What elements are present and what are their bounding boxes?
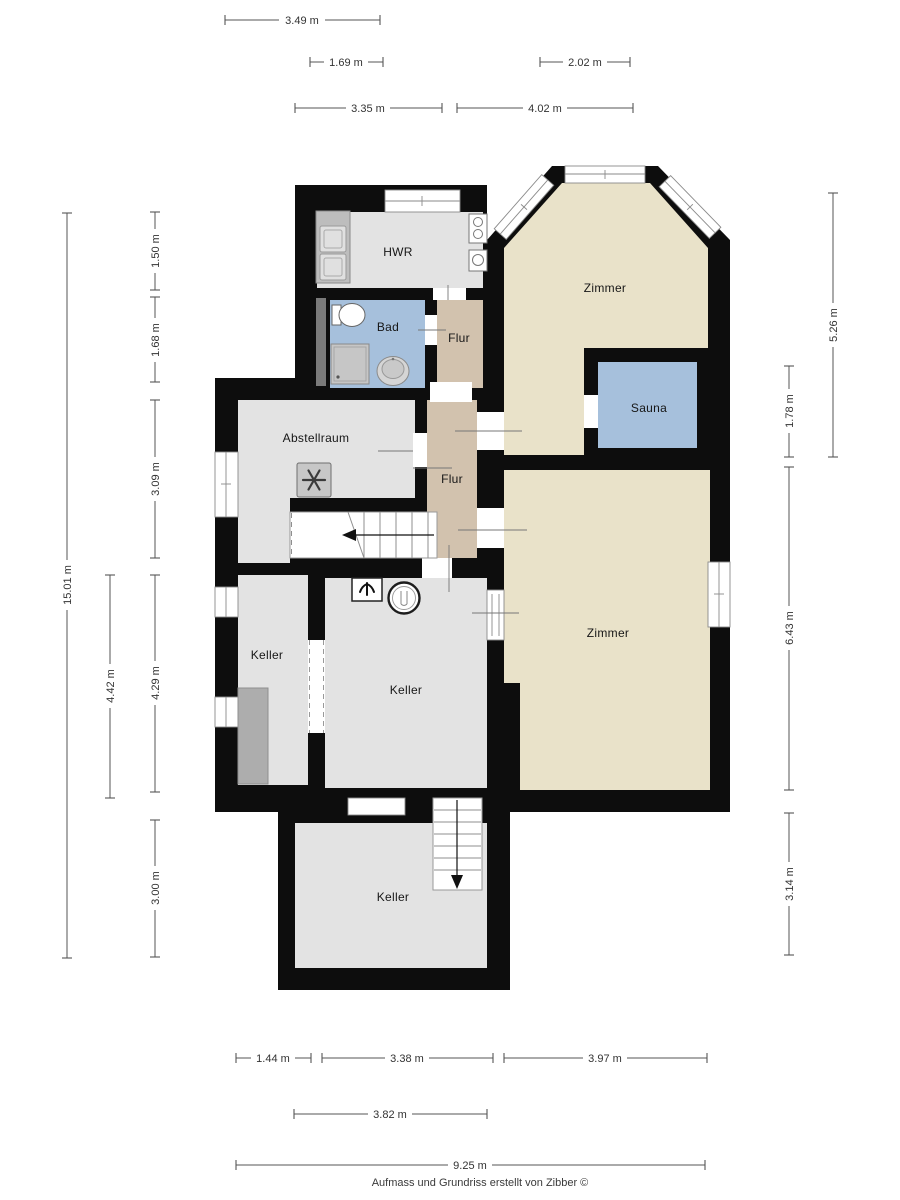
label-hwr: HWR xyxy=(383,245,413,259)
dimension: 6.43 m xyxy=(782,467,796,790)
svg-text:2.02 m: 2.02 m xyxy=(568,57,602,69)
svg-text:3.97 m: 3.97 m xyxy=(588,1053,622,1065)
washbasin-icon xyxy=(377,357,409,386)
svg-text:1.50 m: 1.50 m xyxy=(150,234,162,268)
washer-dryer-icon xyxy=(316,211,350,283)
window-keller-left-2 xyxy=(215,697,238,727)
svg-text:1.69 m: 1.69 m xyxy=(329,57,363,69)
niche-keller-bottom xyxy=(348,798,405,815)
svg-text:1.44 m: 1.44 m xyxy=(256,1053,290,1065)
svg-text:1.68 m: 1.68 m xyxy=(150,323,162,357)
shelf-icon xyxy=(238,688,268,784)
dimension: 1.69 m xyxy=(310,55,383,69)
sink-icon xyxy=(469,250,487,271)
label-keller-mid: Keller xyxy=(390,683,422,697)
dimensions-bottom: 1.44 m 3.38 m 3.97 m 3.82 m 9.25 m xyxy=(236,1051,707,1172)
svg-text:3.35 m: 3.35 m xyxy=(351,103,385,115)
dimension: 4.29 m xyxy=(148,575,162,792)
svg-text:3.09 m: 3.09 m xyxy=(150,462,162,496)
sink-icon xyxy=(469,214,487,243)
dimension: 1.78 m xyxy=(782,366,796,457)
door-sauna xyxy=(584,395,598,428)
dimension: 3.38 m xyxy=(322,1051,493,1065)
window-bay-top xyxy=(565,166,645,183)
toilet-icon xyxy=(332,304,365,327)
opening-flur-top-main xyxy=(430,382,472,402)
label-zimmer-bottom: Zimmer xyxy=(587,626,629,640)
window-hwr-top xyxy=(385,190,460,212)
dimension: 15.01 m xyxy=(60,213,74,958)
opening-flur-keller xyxy=(422,558,452,578)
dimension: 3.14 m xyxy=(782,813,796,955)
boiler-icon xyxy=(389,583,420,614)
freezer-icon xyxy=(297,463,331,497)
label-keller-bottom: Keller xyxy=(377,890,409,904)
door-hwr-flur xyxy=(433,288,466,300)
label-sauna: Sauna xyxy=(631,401,667,415)
window-zimmer-bottom-right xyxy=(708,562,730,627)
dimension: 3.49 m xyxy=(225,13,380,27)
opening-keller-left-mid xyxy=(308,640,325,733)
svg-text:3.49 m: 3.49 m xyxy=(285,15,319,27)
label-flur-main: Flur xyxy=(441,472,463,486)
dimension: 2.02 m xyxy=(540,55,630,69)
dimension: 9.25 m xyxy=(236,1158,705,1172)
pipe-chase xyxy=(316,298,326,386)
stairs-upper xyxy=(290,512,437,558)
label-bad: Bad xyxy=(377,320,399,334)
svg-text:3.38 m: 3.38 m xyxy=(390,1053,424,1065)
dimensions-left: 15.01 m 1.50 m 1.68 m 3.09 m 4.42 m 4.29… xyxy=(60,212,162,958)
dimensions-right: 5.26 m 1.78 m 6.43 m 3.14 m xyxy=(782,193,840,955)
label-zimmer-top: Zimmer xyxy=(584,281,626,295)
label-abstellraum: Abstellraum xyxy=(283,431,350,445)
svg-text:3.14 m: 3.14 m xyxy=(784,867,796,901)
dimension: 1.44 m xyxy=(236,1051,311,1065)
dimension: 3.97 m xyxy=(504,1051,707,1065)
svg-text:15.01 m: 15.01 m xyxy=(62,565,74,605)
door-abstellraum-flur xyxy=(413,433,427,467)
door-flur-zimmer-bottom xyxy=(477,508,504,548)
door-keller-zimmer xyxy=(487,590,504,640)
floorplan-canvas: HWR Bad Flur Zimmer Sauna Abstellraum Fl… xyxy=(0,0,900,1200)
label-keller-left: Keller xyxy=(251,648,283,662)
svg-text:3.00 m: 3.00 m xyxy=(150,871,162,905)
svg-text:1.78 m: 1.78 m xyxy=(784,394,796,428)
dimension: 4.02 m xyxy=(457,101,633,115)
dimension: 1.68 m xyxy=(148,297,162,382)
dimension: 1.50 m xyxy=(148,212,162,290)
shower-icon xyxy=(331,344,369,384)
dimension: 5.26 m xyxy=(826,193,840,457)
tap-icon xyxy=(352,578,382,601)
label-flur-top: Flur xyxy=(448,331,470,345)
stairs-lower xyxy=(433,798,482,890)
dimensions-top: 3.49 m 1.69 m 2.02 m 3.35 m 4.02 m xyxy=(225,13,633,115)
svg-text:4.02 m: 4.02 m xyxy=(528,103,562,115)
dimension: 4.42 m xyxy=(103,575,117,798)
svg-text:3.82 m: 3.82 m xyxy=(373,1109,407,1121)
footer-credit: Aufmass und Grundriss erstellt von Zibbe… xyxy=(372,1177,589,1189)
svg-text:9.25 m: 9.25 m xyxy=(453,1160,487,1172)
svg-text:5.26 m: 5.26 m xyxy=(828,308,840,342)
svg-text:4.29 m: 4.29 m xyxy=(150,666,162,700)
window-keller-left-1 xyxy=(215,587,238,617)
dimension: 3.09 m xyxy=(148,400,162,558)
dimension: 3.00 m xyxy=(148,820,162,957)
floorplan-page: HWR Bad Flur Zimmer Sauna Abstellraum Fl… xyxy=(0,0,900,1200)
window-abstellraum-left xyxy=(215,452,238,517)
dimension: 3.82 m xyxy=(294,1107,487,1121)
svg-text:6.43 m: 6.43 m xyxy=(784,611,796,645)
dimension: 3.35 m xyxy=(295,101,442,115)
svg-text:4.42 m: 4.42 m xyxy=(105,669,117,703)
